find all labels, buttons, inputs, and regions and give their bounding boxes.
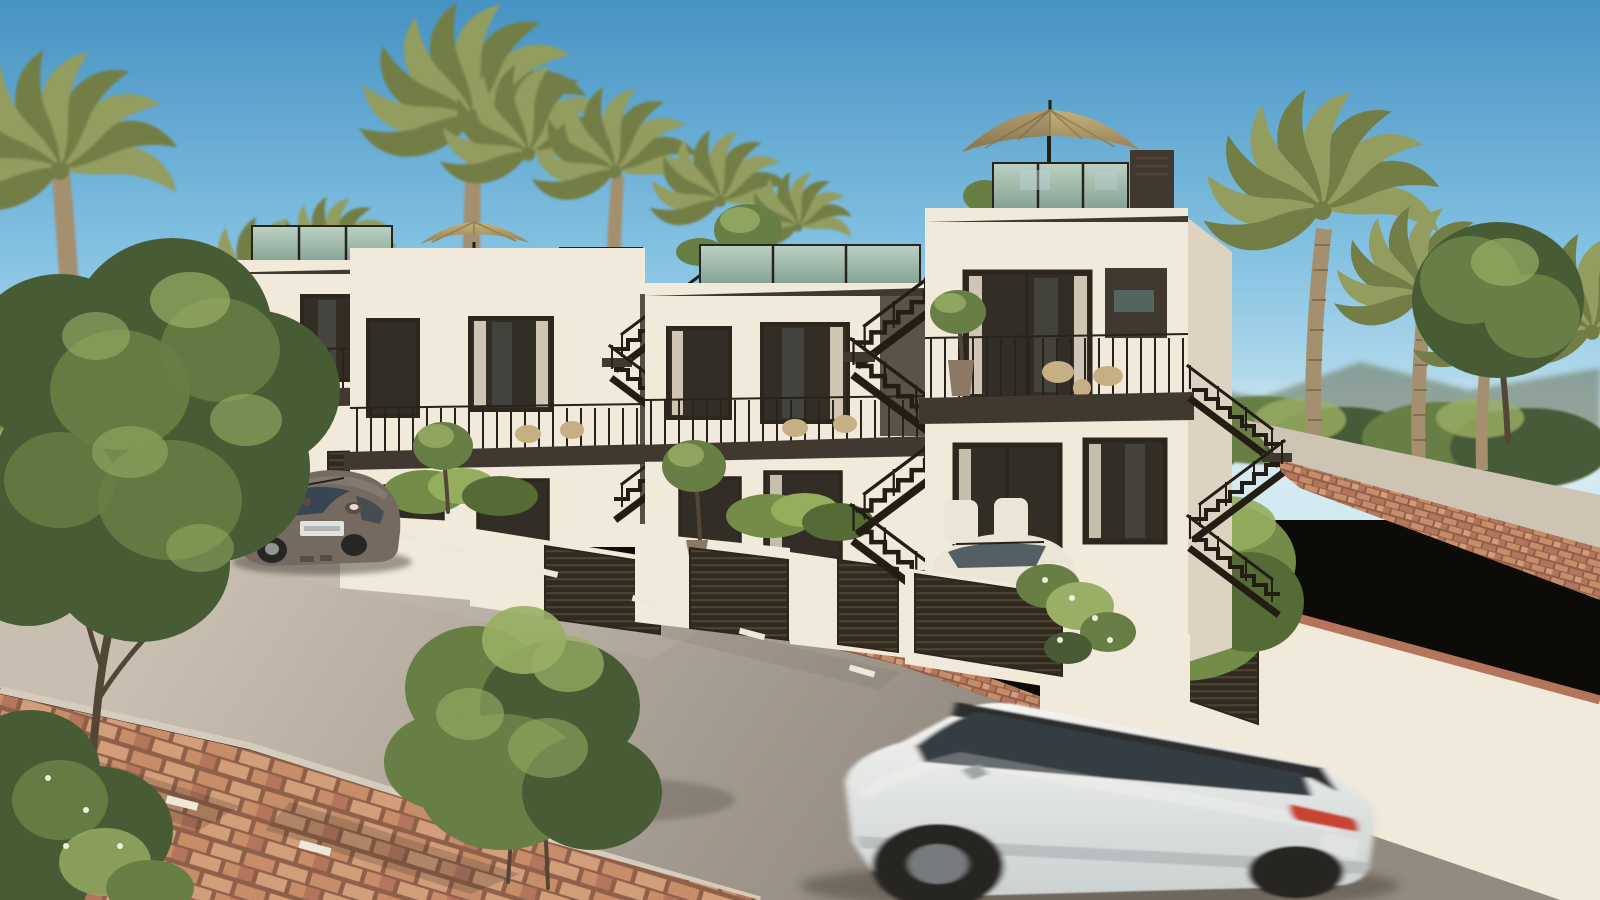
architectural-render: Sunny photorealistic render of a row of … (0, 0, 1600, 900)
sunlight-tint (0, 0, 1600, 900)
render-canvas: Sunny photorealistic render of a row of … (0, 0, 1600, 900)
